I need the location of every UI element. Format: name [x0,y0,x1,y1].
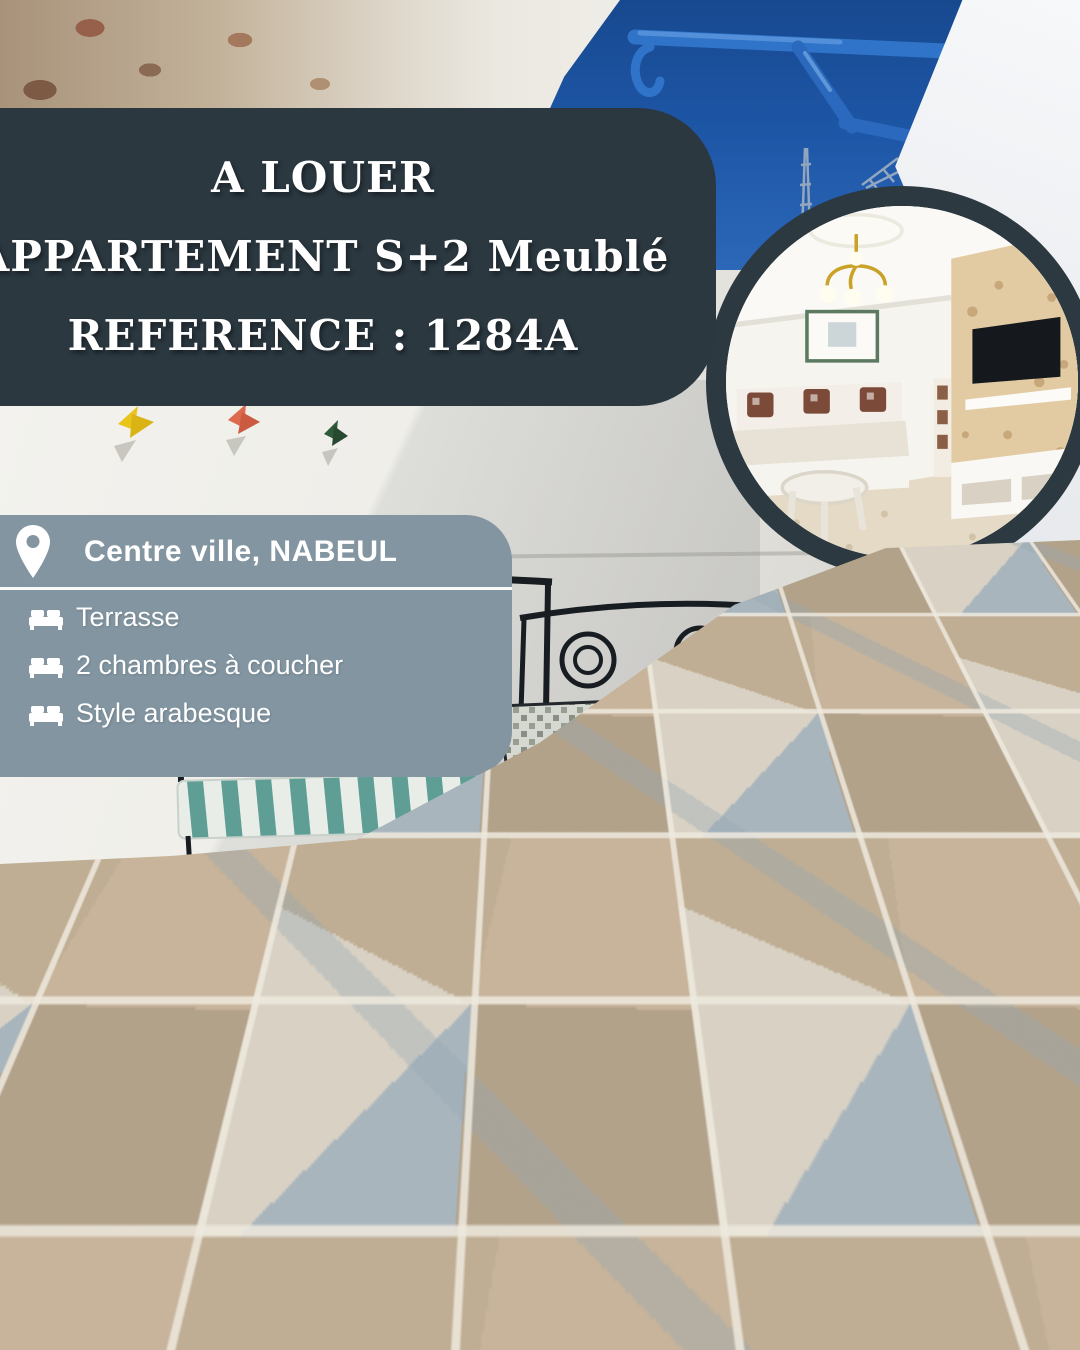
bed-icon [28,652,64,678]
website-label: SITE WEB: [238,1275,380,1308]
website-url: WWW.LEBOULEVARDIMMO.COM [399,1275,839,1308]
feature-item: Terrasse [28,593,512,641]
heading-underline [0,587,512,590]
contact-heading: POUR PLUS INFORMATION: [370,1200,705,1231]
contact-website-line: SITE WEB: WWW.LEBOULEVARDIMMO.COM [238,1275,839,1309]
location-panel: Centre ville, NABEUL Terrasse 2 chambres… [0,515,512,777]
feature-label: 2 chambres à coucher [76,650,343,681]
phone-label: TÉLÉPHONE: [216,1236,394,1269]
wardrobe [931,630,1024,787]
map-pin-icon [14,523,52,581]
location-header: Centre ville, NABEUL [0,515,512,577]
rental-poster: A LOUER APPARTEMENT S+2 Meublé REFERENCE… [0,0,1080,1350]
feature-list: Terrasse 2 chambres à coucher Style arab… [0,577,512,737]
butterfly-green [322,420,348,466]
title-line-rent: A LOUER [211,157,435,199]
contact-panel: POUR PLUS INFORMATION: TÉLÉPHONE: +216 5… [112,1176,964,1332]
old-brick-wall [0,0,620,118]
photo-living-room-2 [700,841,1080,1227]
wall-butterfly-decorations [88,396,368,486]
phone-numbers: +216 55 982 862 | +216 22 232 885 [413,1236,861,1269]
photo-bedroom [774,563,1058,847]
bed-icon [28,604,64,630]
butterfly-yellow [114,406,154,462]
photo-living-room-1 [706,186,1080,578]
location-heading: Centre ville, NABEUL [84,535,397,569]
feature-label: Terrasse [76,602,180,633]
title-panel: A LOUER APPARTEMENT S+2 Meublé REFERENCE… [0,108,716,406]
feature-label: Style arabesque [76,698,271,729]
contact-phone-line: TÉLÉPHONE: +216 55 982 862 | +216 22 232… [216,1236,860,1270]
title-line-property: APPARTEMENT S+2 Meublé [0,236,669,278]
title-line-reference: REFERENCE : 1284A [68,315,579,357]
feature-item: Style arabesque [28,689,512,737]
mosaic-table [498,698,702,1008]
feature-item: 2 chambres à coucher [28,641,512,689]
wall-console [807,312,877,361]
butterfly-coral [226,404,260,456]
bed-icon [28,700,64,726]
